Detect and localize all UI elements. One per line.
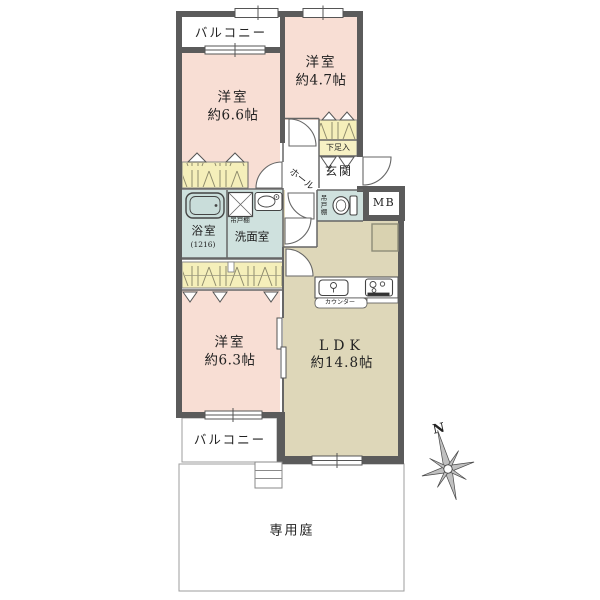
sliding-door: [277, 318, 282, 349]
label-kitchen-counter: カウンター: [325, 299, 355, 307]
label-meter-box: MB: [373, 196, 395, 210]
label-balcony-top: バルコニー: [195, 25, 267, 41]
label-bedroom63: 洋室 約6.3帖: [205, 334, 256, 369]
label-private-garden: 専用庭: [269, 524, 314, 541]
label-ldk: LDK 約14.8帖: [310, 337, 373, 373]
washroom-sink-icon: [255, 193, 282, 211]
compass-icon: [412, 423, 483, 507]
bathtub-icon: [186, 193, 224, 218]
bedroom47-name: 洋室: [296, 54, 347, 72]
ldk-size: 約14.8帖: [310, 355, 373, 373]
door-entrance: [363, 157, 391, 185]
label-bedroom47: 洋室 約4.7帖: [296, 54, 347, 89]
label-balcony-bottom: バルコニー: [194, 432, 266, 448]
garden-steps: [255, 462, 282, 488]
label-bathroom-size: (1216): [191, 240, 216, 250]
label-bedroom66: 洋室 約6.6帖: [208, 89, 259, 124]
bedroom66-size: 約6.6帖: [208, 107, 259, 125]
label-entrance: 玄関: [325, 164, 353, 180]
label-bathroom: 浴室: [192, 224, 217, 239]
label-shoe-storage: 下足入: [326, 143, 350, 153]
toilet-icon: [333, 196, 357, 215]
label-washroom: 洗面室: [235, 230, 270, 245]
bedroom63-name: 洋室: [205, 334, 256, 352]
washer-pan-icon: [229, 193, 253, 217]
floor-plan-page: バルコニー 洋室 約6.6帖 洋室 約4.7帖 洋室 約6.3帖 LDK 約14…: [0, 0, 600, 600]
bedroom66-name: 洋室: [208, 89, 259, 107]
bedroom47-size: 約4.7帖: [296, 72, 347, 90]
floor-plan-drawing: [0, 0, 600, 600]
bedroom63-size: 約6.3帖: [205, 352, 256, 370]
ldk-name: LDK: [310, 337, 373, 355]
refrigerator-space: [372, 224, 398, 251]
label-washroom-hanging-cabinet: 吊戸棚: [230, 216, 250, 224]
label-toilet-hanging-cabinet: 吊戸棚: [320, 195, 329, 215]
